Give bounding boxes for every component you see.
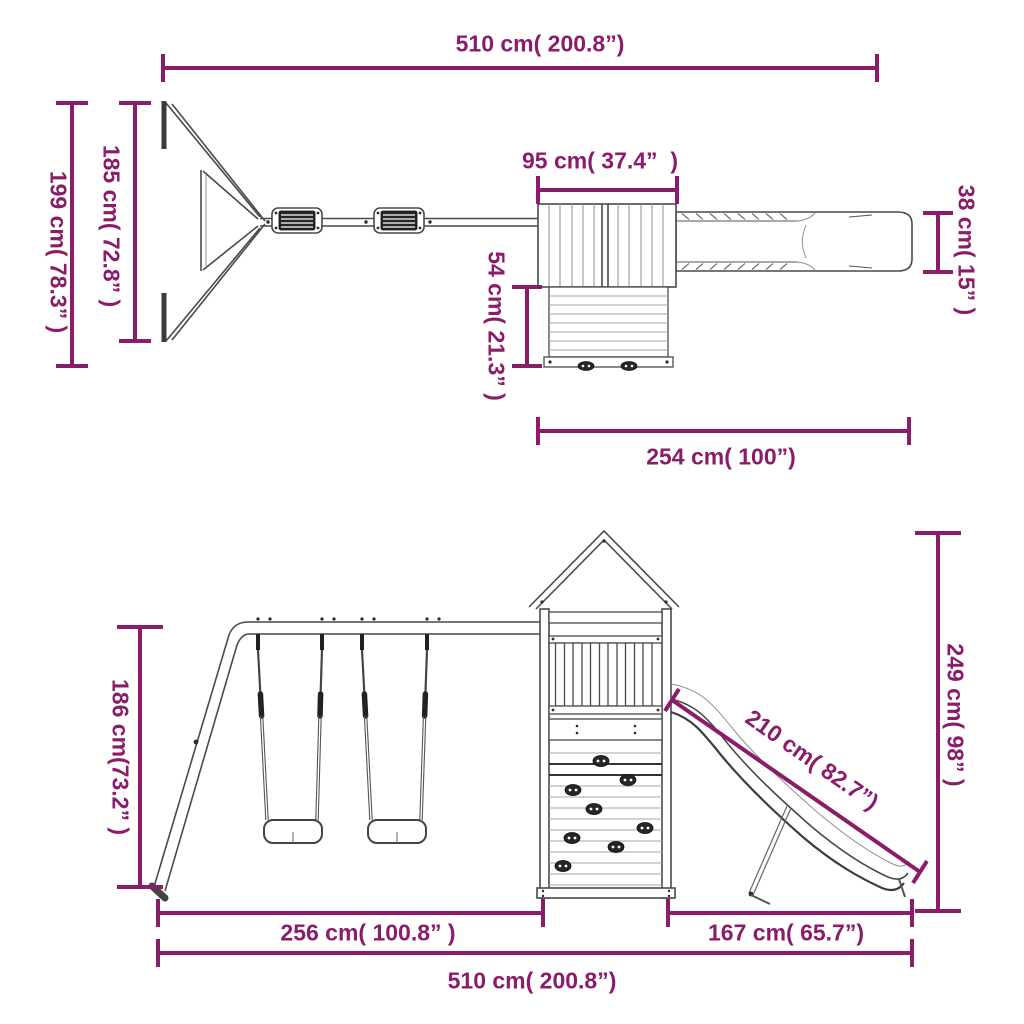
dim-bottom-overall-width: 510 cm( 200.8”) — [448, 970, 617, 993]
swing-seat-top-view — [374, 208, 424, 233]
dim-tower-depth: 54 cm( 21.3” ) — [485, 251, 508, 401]
balustrade — [556, 643, 653, 706]
dim-tower-slide-length: 254 cm( 100”) — [646, 446, 796, 469]
dim-top-overall-width: 510 cm( 200.8”) — [456, 33, 625, 56]
dim-frame-depth-overall: 199 cm( 78.3” ) — [47, 171, 70, 333]
front-view — [117, 531, 961, 967]
dim-slide-width: 38 cm( 15” ) — [955, 185, 978, 315]
swing-set-front-view — [152, 617, 540, 898]
climbing-holds — [555, 756, 653, 872]
dimension-lines-front — [117, 533, 961, 967]
dim-tower-height: 249 cm( 98” ) — [944, 643, 967, 786]
dim-roof-width: 95 cm( 37.4” ) — [522, 150, 678, 173]
tower-front-view — [529, 531, 679, 898]
swing-seat — [368, 820, 426, 843]
climbing-wall — [549, 753, 662, 885]
swing-seat — [264, 820, 322, 843]
swing-rope — [258, 634, 322, 820]
dim-slide-run-length: 167 cm( 65.7”) — [708, 922, 864, 945]
swing-seat-top-view — [272, 208, 322, 233]
swing-frame-top-view — [164, 101, 538, 342]
diagram-drawing — [0, 0, 1024, 1024]
dim-swing-frame-height: 186 cm(73.2” ) — [109, 679, 132, 835]
slide-top-view — [676, 212, 912, 271]
dim-frame-depth-inner: 185 cm( 72.8” ) — [100, 145, 123, 307]
tower-roof-top-view — [538, 204, 676, 287]
swing-rope — [362, 634, 427, 820]
tower-wall-top-view — [544, 287, 673, 371]
dim-swing-section-width: 256 cm( 100.8” ) — [280, 922, 455, 945]
dimension-diagram: 510 cm( 200.8”) 199 cm( 78.3” ) 185 cm( … — [0, 0, 1024, 1024]
